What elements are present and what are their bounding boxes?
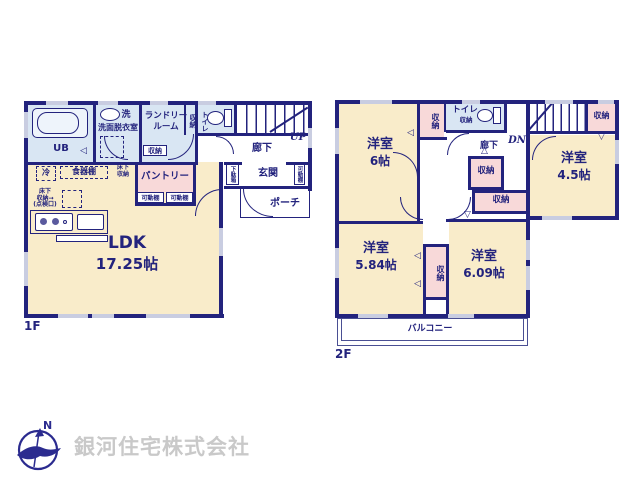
- pantry-label: パントリー: [139, 172, 191, 183]
- cupboard-label: 食器棚: [62, 168, 106, 177]
- wall: [423, 244, 449, 247]
- underfloor-hatch-box: [62, 190, 82, 208]
- window: [542, 216, 572, 220]
- toilet-tank-icon: [493, 107, 501, 124]
- window: [335, 248, 339, 278]
- closet-marker: ▽: [598, 133, 605, 142]
- ub-label: UB: [46, 143, 76, 154]
- wall: [444, 104, 446, 132]
- west45-size: 4.5帖: [548, 169, 600, 182]
- west609-size: 6.09帖: [454, 267, 514, 280]
- laundry-label-2: ルーム: [150, 123, 182, 133]
- toilet-storage-label: 収納: [454, 117, 478, 124]
- company-name: 銀河住宅株式会社: [74, 436, 314, 460]
- porch-label: ポーチ: [264, 198, 306, 209]
- wall: [504, 104, 507, 132]
- window: [335, 128, 339, 154]
- window: [150, 101, 168, 105]
- wall: [417, 137, 447, 140]
- closet-marker: ◁: [414, 252, 421, 261]
- closet-marker: ◁: [414, 280, 421, 289]
- pantry-shelf: 可動棚: [137, 192, 164, 203]
- compass-n-label: N: [43, 419, 52, 432]
- window: [98, 101, 118, 105]
- window: [219, 228, 223, 256]
- wall: [446, 219, 530, 222]
- wall: [193, 162, 196, 204]
- window: [545, 100, 573, 104]
- closet-e-label: 収納: [428, 256, 444, 290]
- toilet-2f-label: トイレ: [450, 106, 480, 116]
- window: [24, 252, 28, 286]
- bath-door-marker: ◁: [80, 147, 87, 156]
- door-arc: [216, 136, 234, 154]
- wall: [423, 297, 449, 300]
- fridge-label: 冷: [37, 169, 55, 178]
- wall: [472, 190, 530, 193]
- wall: [530, 131, 619, 134]
- sink-icon: [100, 108, 120, 121]
- pantry-shelf: 可動棚: [166, 192, 193, 203]
- kitchen-sink-icon: [77, 214, 104, 230]
- closet-marker: ◁: [407, 129, 414, 138]
- window: [46, 101, 68, 105]
- movable-shelf-label: 可動棚: [141, 193, 159, 202]
- window: [92, 314, 114, 318]
- ldk-label: LDK: [92, 234, 162, 253]
- hallway-2f-label: 廊下: [474, 141, 504, 151]
- floorplan-canvas: UP UB ◁ 洗 洗面脱衣室 ランドリー ルーム 収納 収納 トイレ 廊下 下…: [0, 0, 640, 480]
- wall: [501, 156, 504, 190]
- wall: [24, 314, 224, 318]
- wall: [472, 211, 530, 214]
- compass-icon: N: [10, 416, 68, 476]
- closet-b-label: 収納: [589, 112, 614, 121]
- shoe-cabinet-label: 下駄箱: [229, 166, 237, 183]
- movable-shelf-label: 可動棚: [170, 193, 188, 202]
- ldk-size-label: 17.25帖: [84, 256, 170, 273]
- window: [598, 100, 614, 104]
- west6-size: 6帖: [362, 155, 398, 168]
- underfloor-hatch-label: 床下 収納→ (点検口): [30, 189, 60, 209]
- floor2-label: 2F: [335, 348, 363, 361]
- storage-label: 収納: [148, 146, 162, 156]
- stairs-dn-label: DN: [505, 135, 529, 146]
- west45-label: 洋室: [552, 152, 596, 167]
- west6-label: 洋室: [358, 138, 402, 153]
- wall: [423, 244, 426, 317]
- wall: [446, 130, 507, 133]
- entrance-label: 玄関: [250, 168, 286, 179]
- window: [308, 128, 312, 148]
- window: [526, 240, 530, 260]
- closet-d-label: 収納: [484, 196, 518, 206]
- wall: [335, 221, 423, 224]
- window: [360, 100, 392, 104]
- wall: [526, 216, 619, 220]
- entrance-shelf: 可動棚: [294, 164, 305, 185]
- movable-shelf-label: 可動棚: [296, 166, 304, 183]
- door-arc: [447, 133, 469, 155]
- window: [526, 266, 530, 290]
- closet-c-label: 収納: [471, 167, 501, 177]
- wall: [135, 203, 196, 206]
- window: [58, 314, 88, 318]
- window: [24, 112, 28, 138]
- closet-a-label: 収納: [425, 107, 439, 135]
- balcony-label: バルコニー: [398, 324, 462, 334]
- west584-label: 洋室: [354, 242, 398, 257]
- west584-size: 5.84帖: [346, 259, 406, 272]
- toilet-1f-label: トイレ: [198, 108, 208, 134]
- toilet-tank-icon: [224, 109, 232, 127]
- window: [198, 101, 216, 105]
- stove-burner: [63, 220, 67, 224]
- underfloor-storage-label: 床下 収納: [110, 165, 136, 178]
- hallway-1f-label: 廊下: [240, 143, 284, 154]
- stove-burner: [40, 218, 47, 225]
- wall: [93, 101, 96, 165]
- bathtub-inner: [37, 112, 79, 134]
- wall: [468, 156, 504, 159]
- west609-label: 洋室: [462, 250, 506, 265]
- stove-burner: [52, 218, 59, 225]
- laundry-storage-label: 収納: [186, 108, 196, 134]
- laundry-label-1: ランドリー: [143, 112, 189, 122]
- stairs-up-label: UP: [286, 132, 310, 143]
- shoe-cabinet: 下駄箱: [226, 164, 239, 185]
- wall: [446, 244, 449, 317]
- floor1-label: 1F: [24, 320, 50, 333]
- window: [462, 100, 480, 104]
- wall: [585, 104, 588, 132]
- window: [615, 140, 619, 164]
- washroom-label: 洗面脱衣室: [94, 124, 142, 133]
- wall: [234, 101, 237, 135]
- window: [146, 314, 190, 318]
- toilet-bowl-icon: [207, 111, 224, 125]
- toilet-bowl-icon: [477, 109, 493, 122]
- closet-marker: △: [481, 147, 488, 156]
- laundry-shelf: 収納: [143, 145, 167, 156]
- washer-label: 洗: [118, 110, 134, 120]
- wall: [139, 101, 142, 165]
